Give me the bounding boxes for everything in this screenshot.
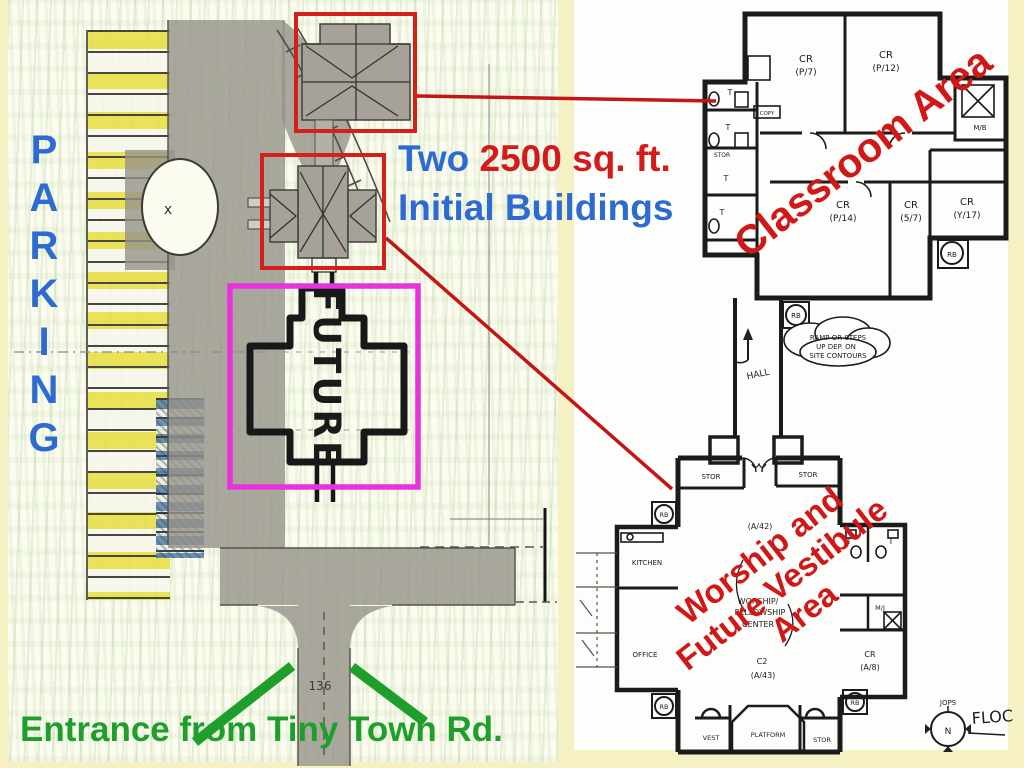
parking-letter: R	[26, 222, 62, 270]
room-copy: COPY	[760, 111, 775, 117]
cr-a8-seats: (A/8)	[860, 663, 880, 672]
parking-label: P A R K I N G	[26, 126, 62, 462]
slide: x	[0, 0, 1024, 768]
callout-line-classroom	[417, 96, 716, 101]
vest-label: VEST	[703, 734, 720, 742]
walkway-b1-b2	[315, 120, 333, 166]
initial-building-1	[302, 24, 410, 120]
toilet-t1: T	[727, 88, 733, 97]
room-cr5-size: (Y/17)	[953, 211, 980, 221]
parking-letter: I	[26, 318, 62, 366]
room-cr1: CR	[799, 54, 813, 65]
future-label: FUTURE	[305, 287, 348, 469]
toilet-t2: T	[725, 123, 731, 132]
toilet-t4: T	[719, 208, 725, 217]
toilet-t3: T	[723, 174, 729, 183]
parking-letter: K	[26, 270, 62, 318]
traffic-island: x	[142, 159, 218, 255]
drive-dimension: 136	[309, 679, 332, 693]
cr-a8: CR	[864, 650, 876, 659]
room-cr2: CR	[879, 50, 893, 61]
island-x-mark: x	[164, 202, 172, 218]
room-cr1-size: (P/7)	[795, 68, 816, 78]
room-stor: STOR	[714, 152, 730, 159]
stor-top-right: STOR	[798, 471, 817, 479]
caption-size: 2500 sq. ft.	[480, 138, 671, 179]
caption-line-1: Two 2500 sq. ft.	[398, 134, 673, 183]
ramp-note-3: SITE CONTOURS	[809, 352, 867, 360]
entrance-label: Entrance from Tiny Town Rd.	[20, 710, 503, 750]
parking-letter: P	[26, 126, 62, 174]
ramp-note-1: RAMP OR STEPS	[810, 334, 867, 342]
kitchen-label: KITCHEN	[632, 559, 662, 567]
hall-corridor	[734, 298, 890, 437]
stor-top-left: STOR	[701, 473, 720, 481]
room-cr3-size: (P/14)	[830, 214, 857, 224]
rb-label-2: RB	[791, 312, 801, 320]
rb-label-1: RB	[947, 251, 957, 259]
room-cr2-size: (P/12)	[873, 64, 900, 74]
compass-n: N	[945, 727, 952, 737]
rb-label-3: RB	[660, 511, 669, 519]
parking-letter: N	[26, 366, 62, 414]
stor-bottom: STOR	[813, 736, 831, 744]
room-cr4-size: (5/7)	[900, 214, 922, 224]
caption-line-2: Initial Buildings	[398, 183, 673, 232]
ramp-note-2: UP DEP. ON	[816, 343, 856, 351]
mj-label: M/J	[875, 604, 885, 612]
parking-letter: A	[26, 174, 62, 222]
room-cr5: CR	[960, 197, 974, 208]
parking-letter: G	[26, 414, 62, 462]
platform-label: PLATFORM	[751, 731, 786, 739]
room-mb: M/B	[973, 124, 986, 132]
callout-line-worship	[386, 238, 672, 489]
rb-label-5: RB	[851, 699, 860, 707]
hall-label: HALL	[746, 368, 771, 383]
floor-note: FLOC	[971, 706, 1014, 728]
compass-initials: JOPS	[939, 699, 957, 707]
buildings-caption: Two 2500 sq. ft. Initial Buildings	[398, 134, 673, 232]
room-cr4: CR	[904, 200, 918, 211]
caption-two: Two	[398, 138, 469, 179]
